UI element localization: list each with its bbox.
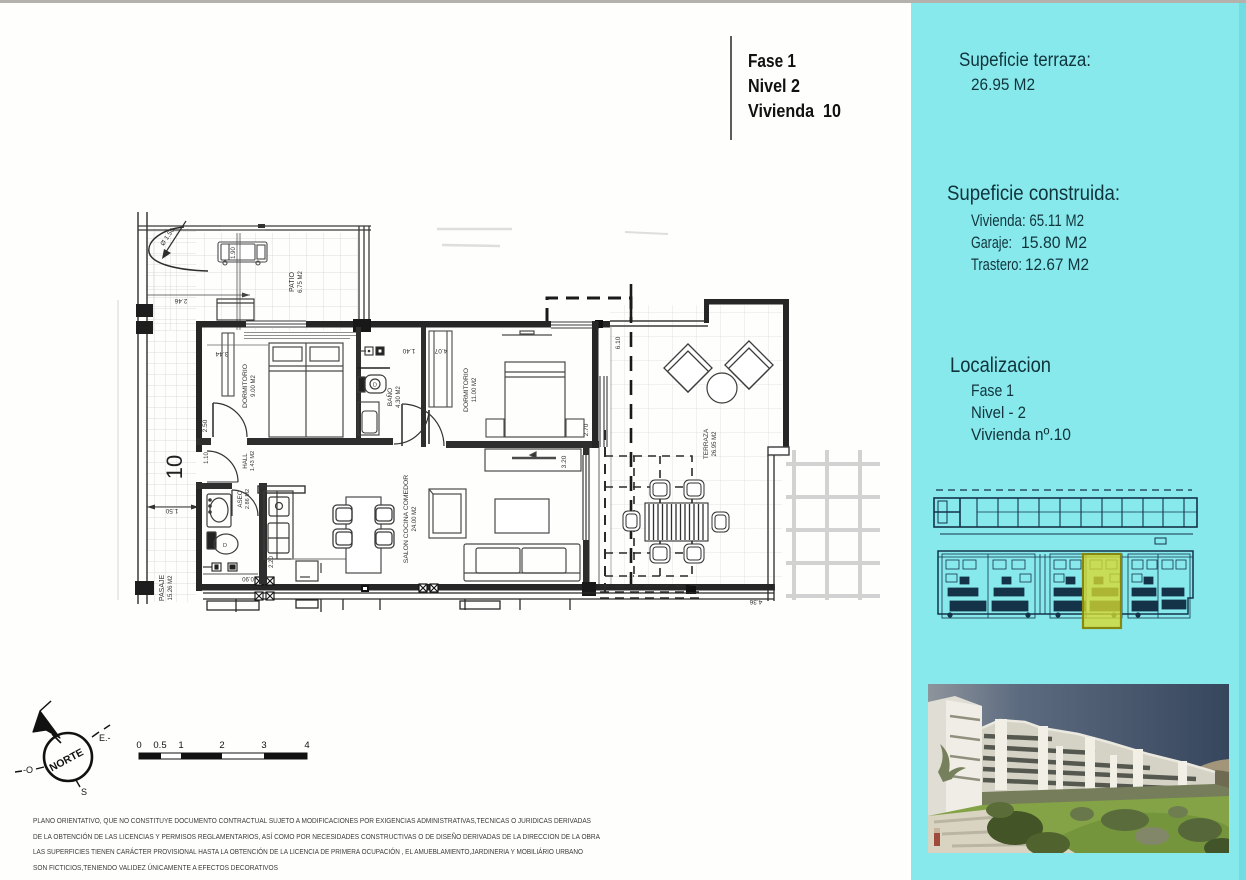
svg-text:15.80 M2: 15.80 M2 bbox=[1021, 234, 1087, 252]
svg-text:3.20: 3.20 bbox=[561, 455, 568, 468]
svg-text:9.00 M2: 9.00 M2 bbox=[251, 375, 257, 397]
svg-text:1.10: 1.10 bbox=[204, 452, 210, 464]
svg-text:4: 4 bbox=[304, 740, 309, 751]
svg-text:BAÑO: BAÑO bbox=[385, 388, 394, 406]
svg-text:LAS SUPERFICIES TIENEN CARÁCTE: LAS SUPERFICIES TIENEN CARÁCTER PROVISIO… bbox=[33, 847, 583, 856]
svg-text:10: 10 bbox=[162, 455, 187, 479]
svg-text:2: 2 bbox=[219, 740, 224, 751]
svg-text:Garaje:: Garaje: bbox=[971, 234, 1012, 252]
svg-text:1.50: 1.50 bbox=[165, 507, 178, 514]
svg-text:0.90: 0.90 bbox=[242, 575, 254, 581]
svg-text:ASEO: ASEO bbox=[237, 490, 244, 507]
svg-text:2.86 M2: 2.86 M2 bbox=[245, 489, 251, 509]
svg-text:Nivel 2: Nivel 2 bbox=[748, 76, 800, 96]
svg-text:1.90: 1.90 bbox=[231, 247, 237, 259]
svg-text:3.44: 3.44 bbox=[215, 350, 228, 357]
svg-text:1: 1 bbox=[178, 740, 183, 751]
svg-text:26.95 M2: 26.95 M2 bbox=[712, 431, 718, 457]
svg-text:DE LA OBTENCIÓN DE LAS LICENCI: DE LA OBTENCIÓN DE LAS LICENCIAS Y PERMI… bbox=[33, 832, 600, 841]
svg-text:Fase 1: Fase 1 bbox=[748, 51, 796, 71]
svg-text:DORMITORIO: DORMITORIO bbox=[242, 364, 249, 408]
svg-text:Vivienda: 65.11 M2: Vivienda: 65.11 M2 bbox=[971, 212, 1084, 230]
svg-text:12.67 M2: 12.67 M2 bbox=[1025, 256, 1089, 274]
svg-text:Supeficie terraza:: Supeficie terraza: bbox=[959, 50, 1091, 71]
svg-text:SON FICTICIOS,TENIENDO VALIDEZ: SON FICTICIOS,TENIENDO VALIDEZ ÚNICAMENT… bbox=[33, 863, 278, 872]
svg-text:Fase 1: Fase 1 bbox=[971, 382, 1014, 400]
svg-text:E.-: E.- bbox=[99, 733, 111, 743]
svg-text:TERRAZA: TERRAZA bbox=[703, 428, 710, 459]
svg-text:SALON COCINA COMEDOR: SALON COCINA COMEDOR bbox=[403, 475, 410, 563]
svg-text:1.40: 1.40 bbox=[402, 347, 415, 354]
svg-text:Vivienda nº.10: Vivienda nº.10 bbox=[971, 426, 1071, 444]
svg-text:0.5: 0.5 bbox=[153, 740, 166, 751]
svg-text:S: S bbox=[81, 787, 87, 797]
svg-text:6.10: 6.10 bbox=[615, 336, 622, 349]
svg-text:2.50: 2.50 bbox=[202, 419, 209, 432]
svg-text:-O: -O bbox=[23, 765, 33, 775]
svg-text:PASAJE: PASAJE bbox=[159, 575, 166, 602]
svg-text:0: 0 bbox=[136, 740, 141, 751]
svg-text:15.26 M2: 15.26 M2 bbox=[168, 575, 174, 601]
svg-text:PLANO ORIENTATIVO, QUE NO CONS: PLANO ORIENTATIVO, QUE NO CONSTITUYE DOC… bbox=[33, 816, 591, 825]
svg-text:4.07: 4.07 bbox=[434, 347, 447, 354]
svg-text:4.30 M2: 4.30 M2 bbox=[396, 386, 402, 408]
svg-text:PATIO: PATIO bbox=[289, 271, 296, 292]
svg-text:26.95 M2: 26.95 M2 bbox=[971, 76, 1035, 94]
svg-text:1.43 M2: 1.43 M2 bbox=[250, 451, 256, 471]
svg-text:D: D bbox=[373, 383, 377, 389]
svg-text:Localizacion: Localizacion bbox=[950, 354, 1051, 377]
svg-text:DORMITORIO: DORMITORIO bbox=[463, 368, 470, 412]
svg-text:2.70: 2.70 bbox=[583, 423, 590, 436]
svg-text:2.20: 2.20 bbox=[269, 556, 275, 568]
svg-text:Nivel - 2: Nivel - 2 bbox=[971, 404, 1026, 422]
svg-text:HALL: HALL bbox=[242, 453, 249, 469]
svg-text:6.75 M2: 6.75 M2 bbox=[298, 271, 304, 293]
svg-text:Supeficie construida:: Supeficie construida: bbox=[947, 182, 1120, 205]
svg-text:Vivienda 10: Vivienda 10 bbox=[748, 101, 841, 121]
svg-text:3: 3 bbox=[261, 740, 266, 751]
svg-text:24.00 M2: 24.00 M2 bbox=[412, 506, 418, 532]
svg-text:2.46: 2.46 bbox=[174, 297, 187, 304]
svg-text:11.00 M2: 11.00 M2 bbox=[472, 377, 478, 402]
svg-text:Trastero:: Trastero: bbox=[971, 256, 1022, 274]
svg-text:D: D bbox=[223, 543, 227, 549]
